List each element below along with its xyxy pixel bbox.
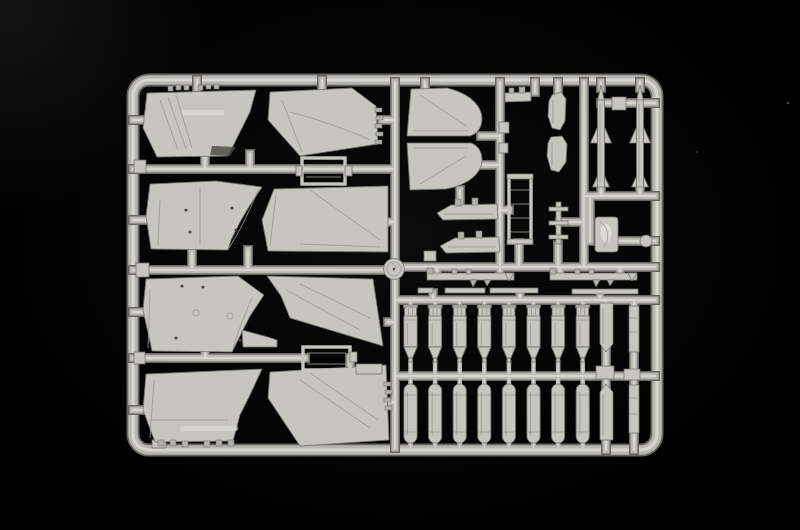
wing-tip-piece (242, 330, 277, 347)
pylon-strip-lower-2 (629, 385, 639, 433)
small-bracket-part (505, 87, 531, 102)
rect-frame-part-2 (303, 347, 357, 370)
wing-panel-row3-left (143, 276, 277, 352)
bomb-half (551, 305, 565, 362)
tail-fin-half-upper (407, 88, 482, 136)
sprue-tab (134, 160, 146, 173)
wing-panel-row1-left (143, 84, 256, 157)
stabilator-half-2 (440, 231, 500, 253)
bomb-half (477, 305, 491, 362)
tank-half (552, 384, 565, 443)
bomb-half (502, 305, 516, 362)
wing-panel-row1-right (268, 88, 383, 156)
connector-block (624, 369, 640, 380)
small-panel-part (356, 364, 382, 374)
spine-strips (418, 288, 638, 294)
tail-fin-half-lower (407, 143, 482, 190)
wing-panel-row4-left (143, 369, 262, 447)
wing-panel-row3-right (267, 276, 383, 346)
tank-half (576, 384, 589, 443)
sprue-photo (0, 0, 800, 530)
sprue-tab (499, 122, 509, 133)
dust-speck (696, 151, 698, 153)
tank-half (429, 384, 442, 443)
pylon-strip-upper-1 (600, 303, 613, 352)
tank-row-lower (404, 384, 589, 443)
small-block-part (424, 251, 436, 261)
stores-rack-part (549, 202, 568, 244)
tank-half (404, 384, 417, 443)
bomb-half (576, 305, 590, 362)
tank-half (453, 384, 466, 443)
drop-tank-half-lower (547, 136, 567, 172)
connector-block (612, 97, 626, 110)
bomb-half (428, 305, 442, 362)
sprue-tab (134, 352, 145, 364)
ejection-seat-part (595, 217, 618, 252)
tank-half (478, 384, 491, 443)
wing-panel-row4-right (268, 365, 392, 446)
bomb-half (453, 305, 467, 362)
pylon-strip-upper-2 (629, 306, 639, 352)
bomb-half (404, 305, 418, 362)
tank-half (527, 384, 540, 443)
pylon-strip-lower-1 (600, 384, 613, 440)
ball-joint-part (640, 235, 652, 247)
connector-block (596, 366, 614, 379)
dust-specks (696, 102, 789, 153)
wing-panel-row2-right (262, 186, 388, 252)
wing-panel-row2-left (146, 181, 262, 250)
dust-speck (787, 102, 790, 105)
bomb-row-upper (404, 305, 590, 362)
tank-half (502, 384, 515, 443)
sprue-tab (136, 263, 149, 277)
bomb-half (527, 305, 541, 362)
sprue-tab (499, 143, 508, 153)
stabilator-half-1 (437, 198, 498, 220)
round-dish-part (384, 259, 405, 280)
drop-tank-half-upper (548, 92, 566, 130)
